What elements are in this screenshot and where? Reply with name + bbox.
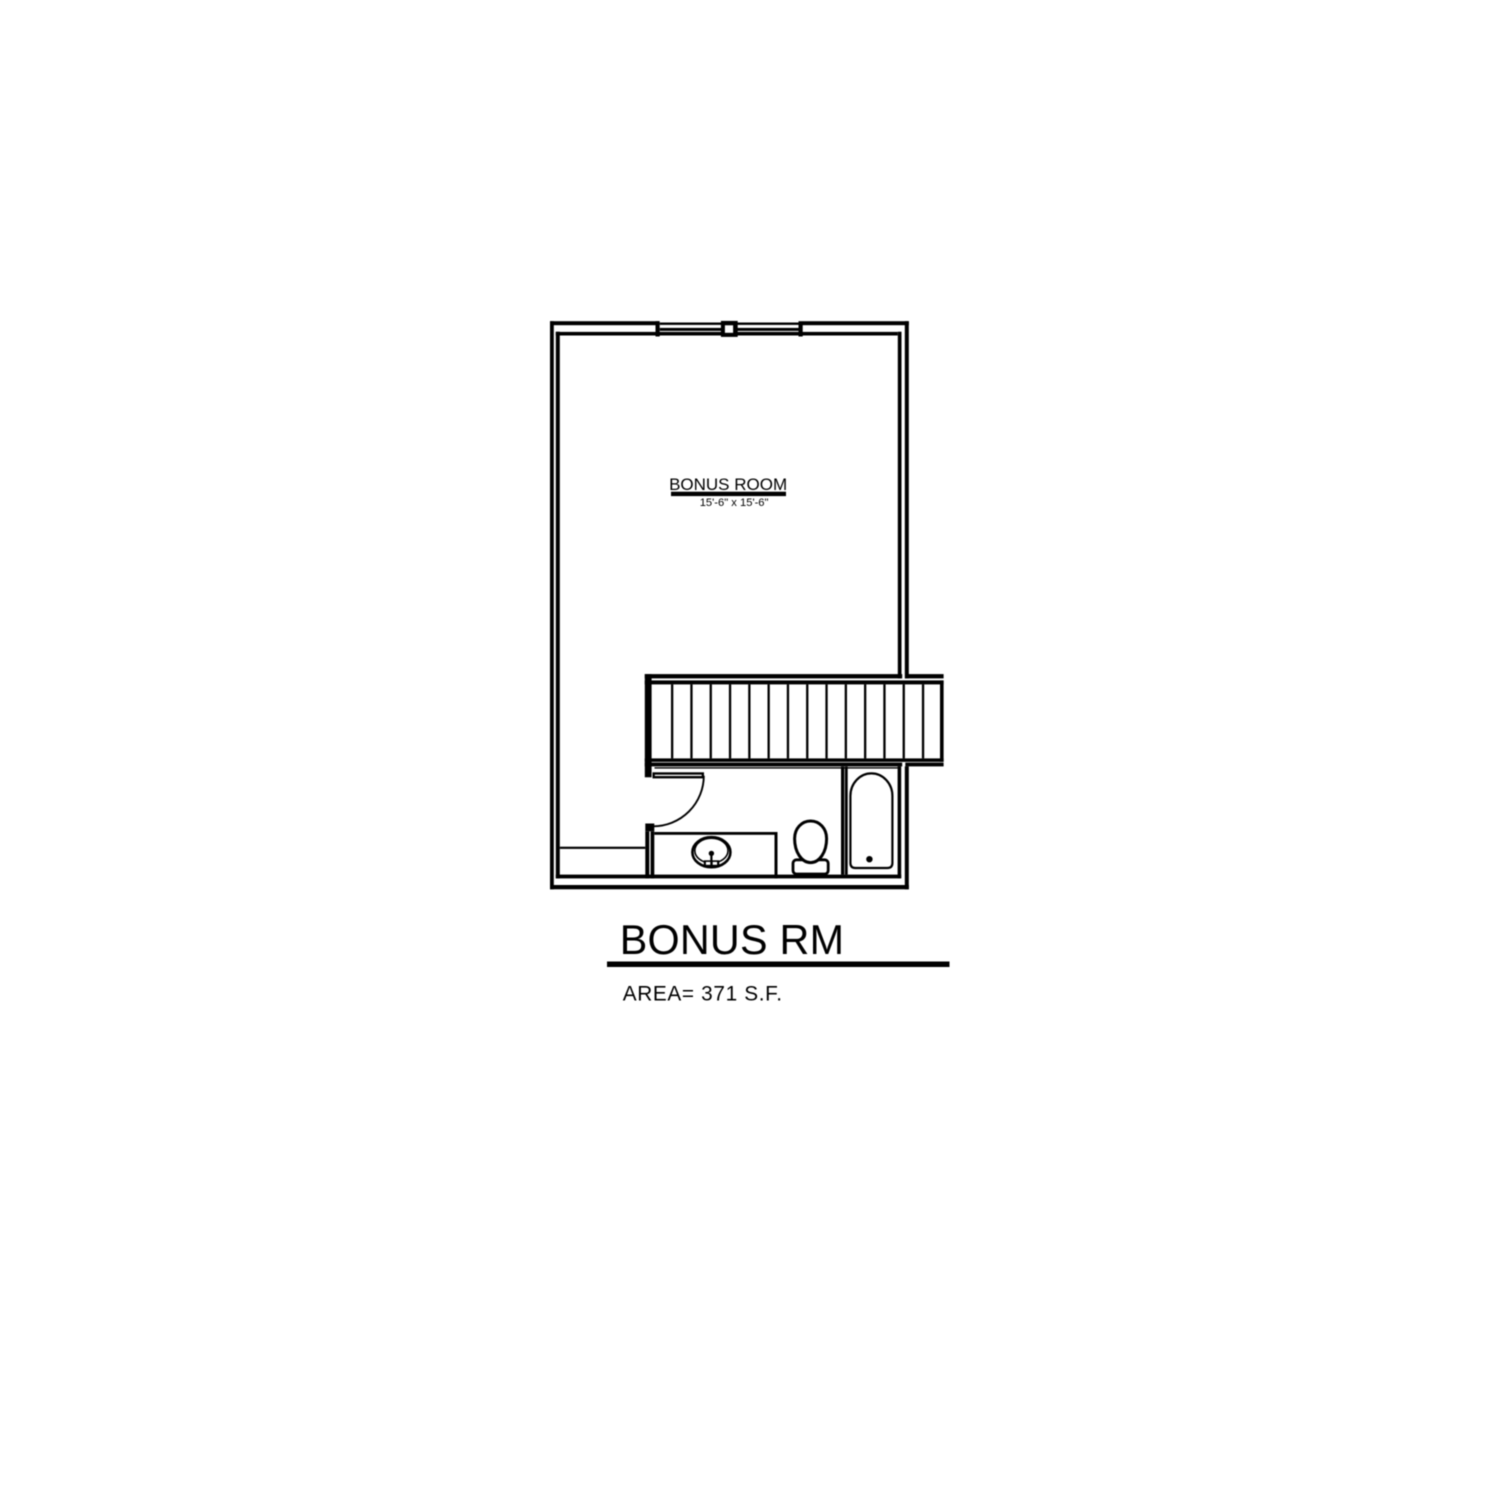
- svg-text:15'-6" x 15'-6": 15'-6" x 15'-6": [700, 497, 769, 509]
- svg-text:BONUS ROOM: BONUS ROOM: [669, 475, 787, 494]
- svg-text:AREA= 371 S.F.: AREA= 371 S.F.: [623, 983, 783, 1006]
- svg-text:BONUS RM: BONUS RM: [620, 917, 845, 963]
